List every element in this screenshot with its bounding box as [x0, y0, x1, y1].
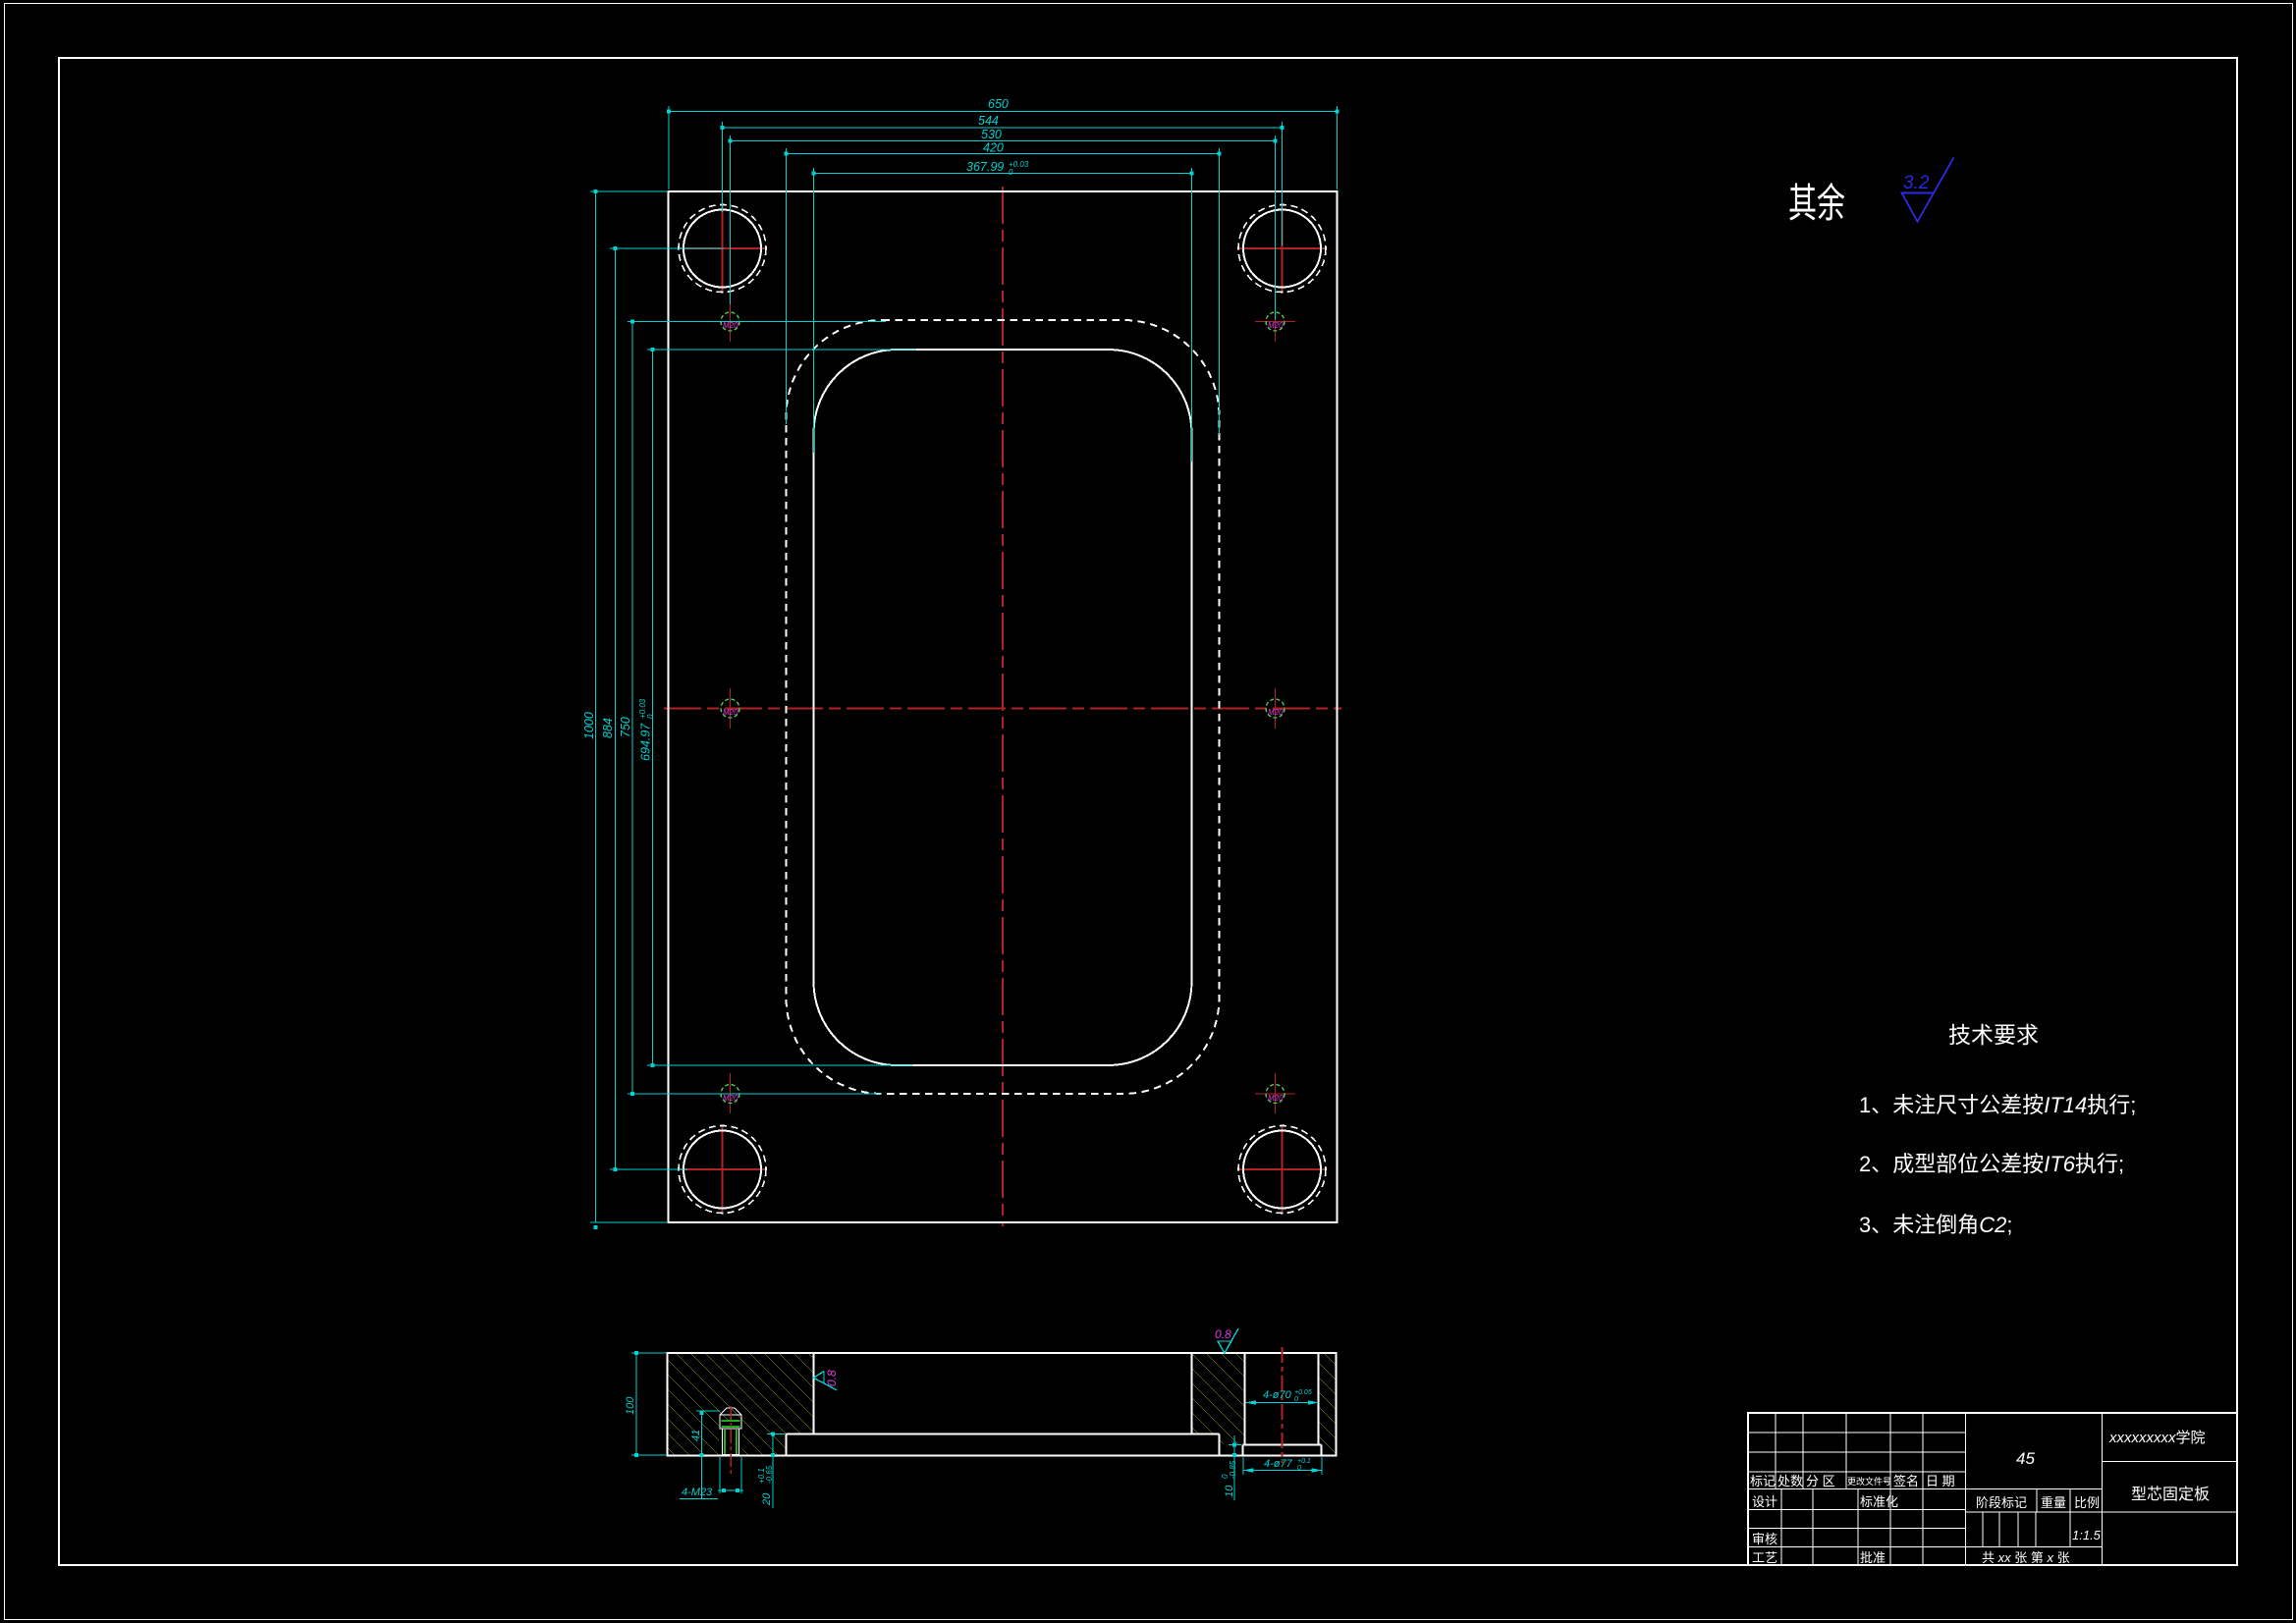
svg-text:0: 0: [1297, 1465, 1301, 1472]
svg-text:4-ø77: 4-ø77: [1264, 1458, 1293, 1470]
svg-text:0: 0: [646, 714, 655, 719]
svg-text:750: 750: [619, 717, 632, 737]
svg-text:共 xx 张 第 x 张: 共 xx 张 第 x 张: [1982, 1550, 2070, 1565]
svg-text:阶段标记: 阶段标记: [1976, 1495, 2027, 1510]
svg-text:其余: 其余: [1788, 181, 1845, 226]
svg-text:45: 45: [2016, 1449, 2035, 1468]
svg-text:10: 10: [1224, 1485, 1235, 1497]
svg-text:650: 650: [988, 97, 1009, 111]
svg-text:设计: 设计: [1752, 1494, 1777, 1509]
svg-text:标准化: 标准化: [1860, 1494, 1898, 1509]
svg-text:4-ø70: 4-ø70: [1263, 1389, 1292, 1401]
svg-text:0.8: 0.8: [1215, 1327, 1231, 1341]
svg-text:41: 41: [690, 1430, 702, 1441]
svg-text:M20: M20: [723, 708, 738, 717]
svg-text:0: 0: [1009, 168, 1013, 177]
svg-text:技术要求: 技术要求: [1948, 1022, 2039, 1048]
svg-text:+0.05: +0.05: [1294, 1389, 1312, 1396]
svg-text:0: 0: [1294, 1396, 1298, 1403]
svg-text:M20: M20: [723, 1094, 738, 1103]
svg-text:100: 100: [625, 1396, 636, 1415]
svg-text:+0.1: +0.1: [1297, 1458, 1311, 1465]
svg-text:M20: M20: [723, 321, 738, 330]
svg-text:M20: M20: [1268, 708, 1284, 717]
svg-text:重量: 重量: [2041, 1495, 2066, 1510]
svg-text:M20: M20: [1268, 1094, 1284, 1103]
svg-text:xxxxxxxxx学院: xxxxxxxxx学院: [2108, 1429, 2206, 1446]
svg-text:3.2: 3.2: [1903, 173, 1930, 193]
svg-text:签名: 签名: [1893, 1474, 1919, 1488]
svg-text:批准: 批准: [1860, 1550, 1886, 1565]
svg-text:分 区: 分 区: [1806, 1474, 1835, 1488]
svg-text:型芯固定板: 型芯固定板: [2131, 1486, 2210, 1503]
svg-text:更改文件号: 更改文件号: [1847, 1476, 1891, 1487]
svg-text:1、未注尺寸公差按IT14执行;: 1、未注尺寸公差按IT14执行;: [1859, 1093, 2136, 1117]
svg-text:处数: 处数: [1777, 1474, 1803, 1488]
svg-text:工艺: 工艺: [1752, 1550, 1777, 1565]
svg-text:1000: 1000: [582, 712, 596, 739]
svg-text:-0.65: -0.65: [765, 1465, 774, 1484]
svg-text:M20: M20: [1268, 321, 1284, 330]
svg-text:0.8: 0.8: [825, 1370, 839, 1386]
svg-text:4-M23: 4-M23: [682, 1487, 713, 1498]
svg-text:审核: 审核: [1752, 1532, 1777, 1546]
svg-text:日 期: 日 期: [1926, 1474, 1955, 1488]
svg-text:3、未注倒角C2;: 3、未注倒角C2;: [1859, 1213, 2013, 1237]
svg-text:367.99: 367.99: [966, 160, 1004, 174]
svg-text:530: 530: [981, 128, 1002, 141]
svg-text:标记: 标记: [1750, 1474, 1776, 1488]
svg-text:20: 20: [761, 1492, 773, 1506]
svg-text:544: 544: [978, 114, 999, 128]
svg-text:1:1.5: 1:1.5: [2072, 1528, 2102, 1542]
svg-text:884: 884: [601, 718, 615, 738]
svg-text:420: 420: [983, 141, 1004, 155]
svg-text:比例: 比例: [2074, 1495, 2100, 1510]
svg-text:-0.85: -0.85: [1229, 1460, 1237, 1479]
svg-text:2、成型部位公差按IT6执行;: 2、成型部位公差按IT6执行;: [1859, 1152, 2124, 1176]
svg-text:694.97: 694.97: [639, 723, 653, 761]
